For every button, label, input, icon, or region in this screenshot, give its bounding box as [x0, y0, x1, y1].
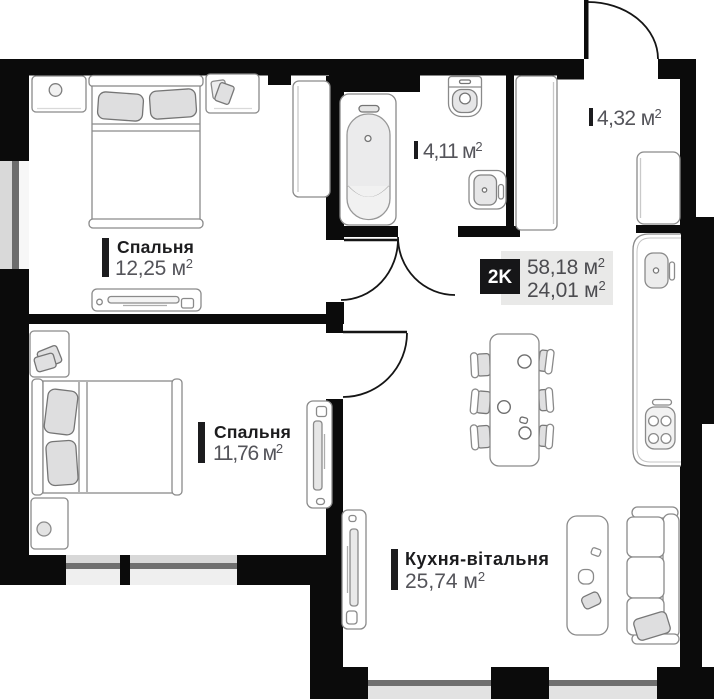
svg-text:58,18 м2: 58,18 м2 [527, 255, 605, 279]
svg-text:24,01 м2: 24,01 м2 [527, 278, 605, 302]
svg-text:2K: 2K [488, 267, 513, 288]
svg-text:Спальня: Спальня [214, 422, 291, 442]
svg-text:12,25 м2: 12,25 м2 [115, 256, 193, 280]
svg-text:25,74 м2: 25,74 м2 [405, 569, 485, 593]
svg-text:Кухня-вітальня: Кухня-вітальня [405, 549, 549, 569]
svg-text:4,32 м2: 4,32 м2 [597, 106, 662, 130]
svg-text:Спальня: Спальня [117, 237, 194, 257]
svg-text:4,11 м2: 4,11 м2 [423, 139, 482, 163]
svg-text:11,76 м2: 11,76 м2 [213, 441, 283, 465]
